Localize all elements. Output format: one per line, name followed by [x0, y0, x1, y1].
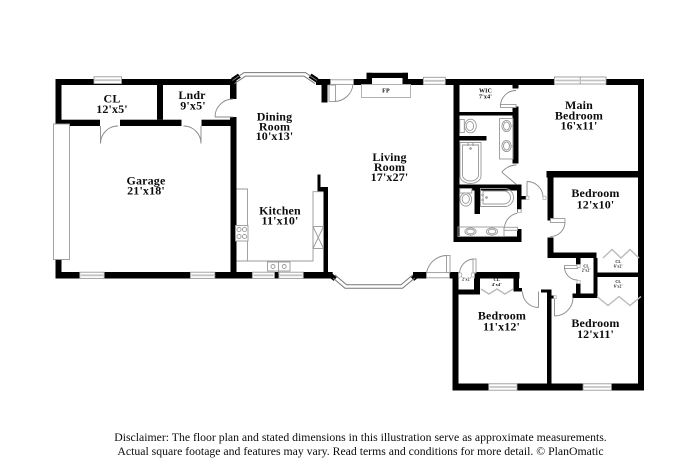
svg-text:9'x5': 9'x5': [180, 99, 205, 113]
svg-text:6'x2': 6'x2': [614, 284, 623, 289]
svg-text:21'x18': 21'x18': [127, 184, 165, 198]
svg-text:FP: FP: [382, 89, 390, 95]
svg-text:12'x5': 12'x5': [96, 102, 128, 116]
svg-text:2'x2': 2'x2': [462, 277, 471, 282]
svg-text:16'x11': 16'x11': [560, 119, 597, 133]
svg-text:17'x27': 17'x27': [371, 170, 409, 184]
svg-text:6'x2': 6'x2': [614, 264, 623, 269]
svg-text:10'x13': 10'x13': [256, 129, 294, 143]
svg-text:Disclaimer: The floor plan and: Disclaimer: The floor plan and stated di…: [114, 431, 607, 444]
svg-text:11'x12': 11'x12': [483, 320, 520, 334]
svg-text:2'x2': 2'x2': [582, 268, 591, 273]
svg-text:4'x4': 4'x4': [492, 282, 502, 287]
svg-text:Actual square footage and feat: Actual square footage and features may v…: [117, 445, 603, 458]
svg-text:12'x10': 12'x10': [577, 198, 615, 212]
svg-text:11'x10': 11'x10': [261, 214, 298, 228]
svg-text:7'x4': 7'x4': [479, 95, 492, 101]
svg-text:12'x11': 12'x11': [577, 327, 614, 341]
